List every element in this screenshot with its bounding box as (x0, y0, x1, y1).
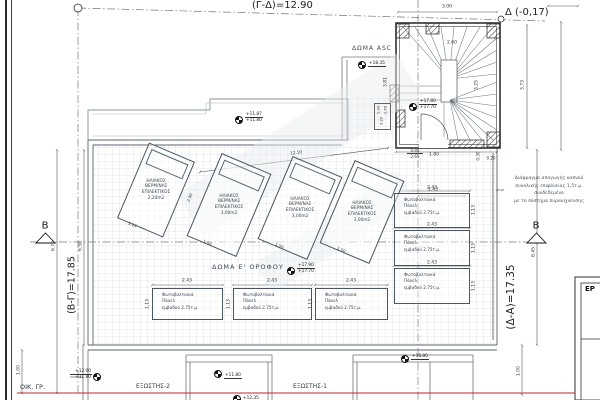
level-marker (233, 395, 241, 400)
dim-670: 6.70 (52, 241, 57, 251)
pv-dim-width: 2.43 (427, 186, 437, 191)
dim-stair-mid: 3.25 (475, 80, 480, 90)
pv-panel-label: ΦωτοβολταικάΠάνελεμβαδού 2.75τ.μ. (153, 289, 222, 311)
dim-645: 6.45 (532, 247, 537, 257)
level-marker (409, 103, 417, 111)
level-marker (93, 373, 101, 381)
pv-panel-label: ΦωτοβολταικάΠάνελεμβαδού 2.75τ.μ. (316, 289, 387, 311)
level-marker (401, 355, 409, 363)
building-line-label: ΟΙΚ. ΓΡ. (20, 383, 45, 391)
pv-dim-width: 2.43 (346, 279, 356, 284)
dim-030: 0.30 (476, 152, 481, 161)
datum-reference-label: Δ (-0,17) (505, 7, 549, 18)
sheet-border (6, 0, 12, 400)
dim-stack-085-265: 0.852.65 (407, 148, 423, 159)
pv-dim-height: 1.13 (472, 205, 477, 215)
elevation-balcony: +11.80 (224, 373, 242, 379)
solar-panel-label: ΗΛΙΑΚΟΣΘΕΡΜ/ΝΑΣ ΕΠΙΛΕΚΤΙΚΟΣ3,00m2 (274, 164, 326, 252)
dim-box-150: 1.50 (383, 106, 388, 114)
pv-dim-width: 2.43 (427, 261, 437, 266)
elevation-left-balcony: +12.00+11.80 (70, 369, 92, 381)
pv-panel: ΦωτοβολταικάΠάνελεμβαδού 2.75τ.μ. (152, 288, 223, 320)
smoke-vent-note: Διάφραγμα απαγωγής καπνούσυνολικής επιφά… (500, 175, 598, 205)
pv-panel: ΦωτοβολταικάΠάνελεμβαδού 2.75τ.μ. (315, 288, 388, 320)
axis-datum-circle (74, 4, 82, 12)
elevation-street: +12.35 (242, 396, 260, 400)
lower-roof-outline (88, 99, 348, 140)
area-label-balcony-1: ΕΞΩΣΤΗΣ-1 (293, 383, 327, 390)
level-marker (287, 267, 295, 275)
area-label-roof-asc: ΔΩΜΑ ASC (352, 45, 392, 52)
dim-020: 0.20 (487, 156, 496, 161)
solar-panel-label: ΗΛΙΑΚΟΣΘΕΡΜ/ΝΑΣ ΕΠΙΛΕΚΤΙΚΟΣ2,20m2 (132, 150, 180, 230)
pv-dim-height: 1.13 (227, 299, 232, 309)
delta-datum-circle (498, 16, 504, 22)
dim-180: 1.80 (429, 153, 439, 158)
pv-dim-width: 2.43 (427, 223, 437, 228)
dim-stair-width: 3.00 (442, 5, 452, 10)
dim-stair-right: 3.73 (521, 80, 526, 90)
elevation-lower-roof: +11.87+11.80 (245, 112, 263, 124)
elevation-terrace: +17.90+17.70 (297, 263, 315, 275)
dim-100-left: 1.00 (17, 365, 22, 375)
dim-stair-inner: 2.60 (447, 41, 457, 46)
dim-650: 6.50 (79, 241, 84, 251)
solar-panel-label: ΗΛΙΑΚΟΣΘΕΡΜ/ΝΑΣ ΕΠΙΛΕΚΤΙΚΟΣ3,00m2 (336, 168, 388, 256)
pv-panel-label: ΦωτοβολταικάΠάνελεμβαδού 2.75τ.μ. (395, 231, 469, 253)
pv-panel-label: ΦωτοβολταικάΠάνελεμβαδού 2.75τ.μ. (395, 269, 469, 291)
area-label-roof-5th: ΔΩΜΑ Ε' ΟΡΟΦΟΥ (212, 263, 284, 271)
title-block (575, 277, 600, 400)
title-block-text: ΕΡ (585, 285, 595, 293)
pv-dim-height: 1.13 (472, 281, 477, 291)
pv-panel-label: ΦωτοβολταικάΠάνελεμβαδού 2.75τ.μ. (234, 289, 311, 311)
pv-panel: ΦωτοβολταικάΠάνελεμβαδού 2.75τ.μ. (394, 268, 470, 304)
level-marker (358, 61, 366, 69)
floor-plan-sheet: ΗΛΙΑΚΟΣΘΕΡΜ/ΝΑΣ ΕΠΙΛΕΚΤΙΚΟΣ2,20m2 ΗΛΙΑΚΟ… (0, 0, 600, 400)
section-marker-b-left: B (42, 221, 49, 232)
pv-panel: ΦωτοβολταικάΠάνελεμβαδού 2.75τ.μ. (233, 288, 312, 320)
level-marker (235, 116, 243, 124)
elevation-parapet: +18.80 (411, 354, 429, 360)
pv-dim-height: 1.13 (472, 243, 477, 253)
top-dimension-label: (Γ-Δ)=12.90 (252, 0, 313, 11)
area-label-balcony-2: ΕΞΩΣΤΗΣ-2 (136, 383, 170, 390)
pv-dim-width: 2.43 (267, 279, 277, 284)
pv-dim-height: 1.13 (309, 299, 314, 309)
dim-box-130: 1.30 (376, 106, 381, 114)
dim-box-320: 3.20 (379, 117, 384, 125)
elevation-asc: +18.35 (368, 61, 386, 67)
pv-dim-width: 2.43 (182, 279, 192, 284)
dim-100-right: 1.00 (517, 366, 522, 376)
level-marker (214, 370, 222, 378)
elevation-stair: +17.80+17.70 (419, 99, 437, 111)
stairwell (390, 23, 500, 148)
section-marker-b-right: B (533, 221, 540, 232)
solar-panel-label: ΗΛΙΑΚΟΣΘΕΡΜ/ΝΑΣ ΕΠΙΛΕΚΤΙΚΟΣ3,00m2 (203, 161, 255, 249)
left-boundary-dimension: (Β-Γ)=17.85 (67, 256, 78, 314)
pv-dim-height: 1.13 (146, 299, 151, 309)
dim-stair-left: 3.81 (384, 77, 389, 87)
right-boundary-dimension: (Δ-Α)=17.35 (505, 264, 517, 329)
pv-panel-label: ΦωτοβολταικάΠάνελεμβαδού 2.75τ.μ. (395, 194, 469, 216)
